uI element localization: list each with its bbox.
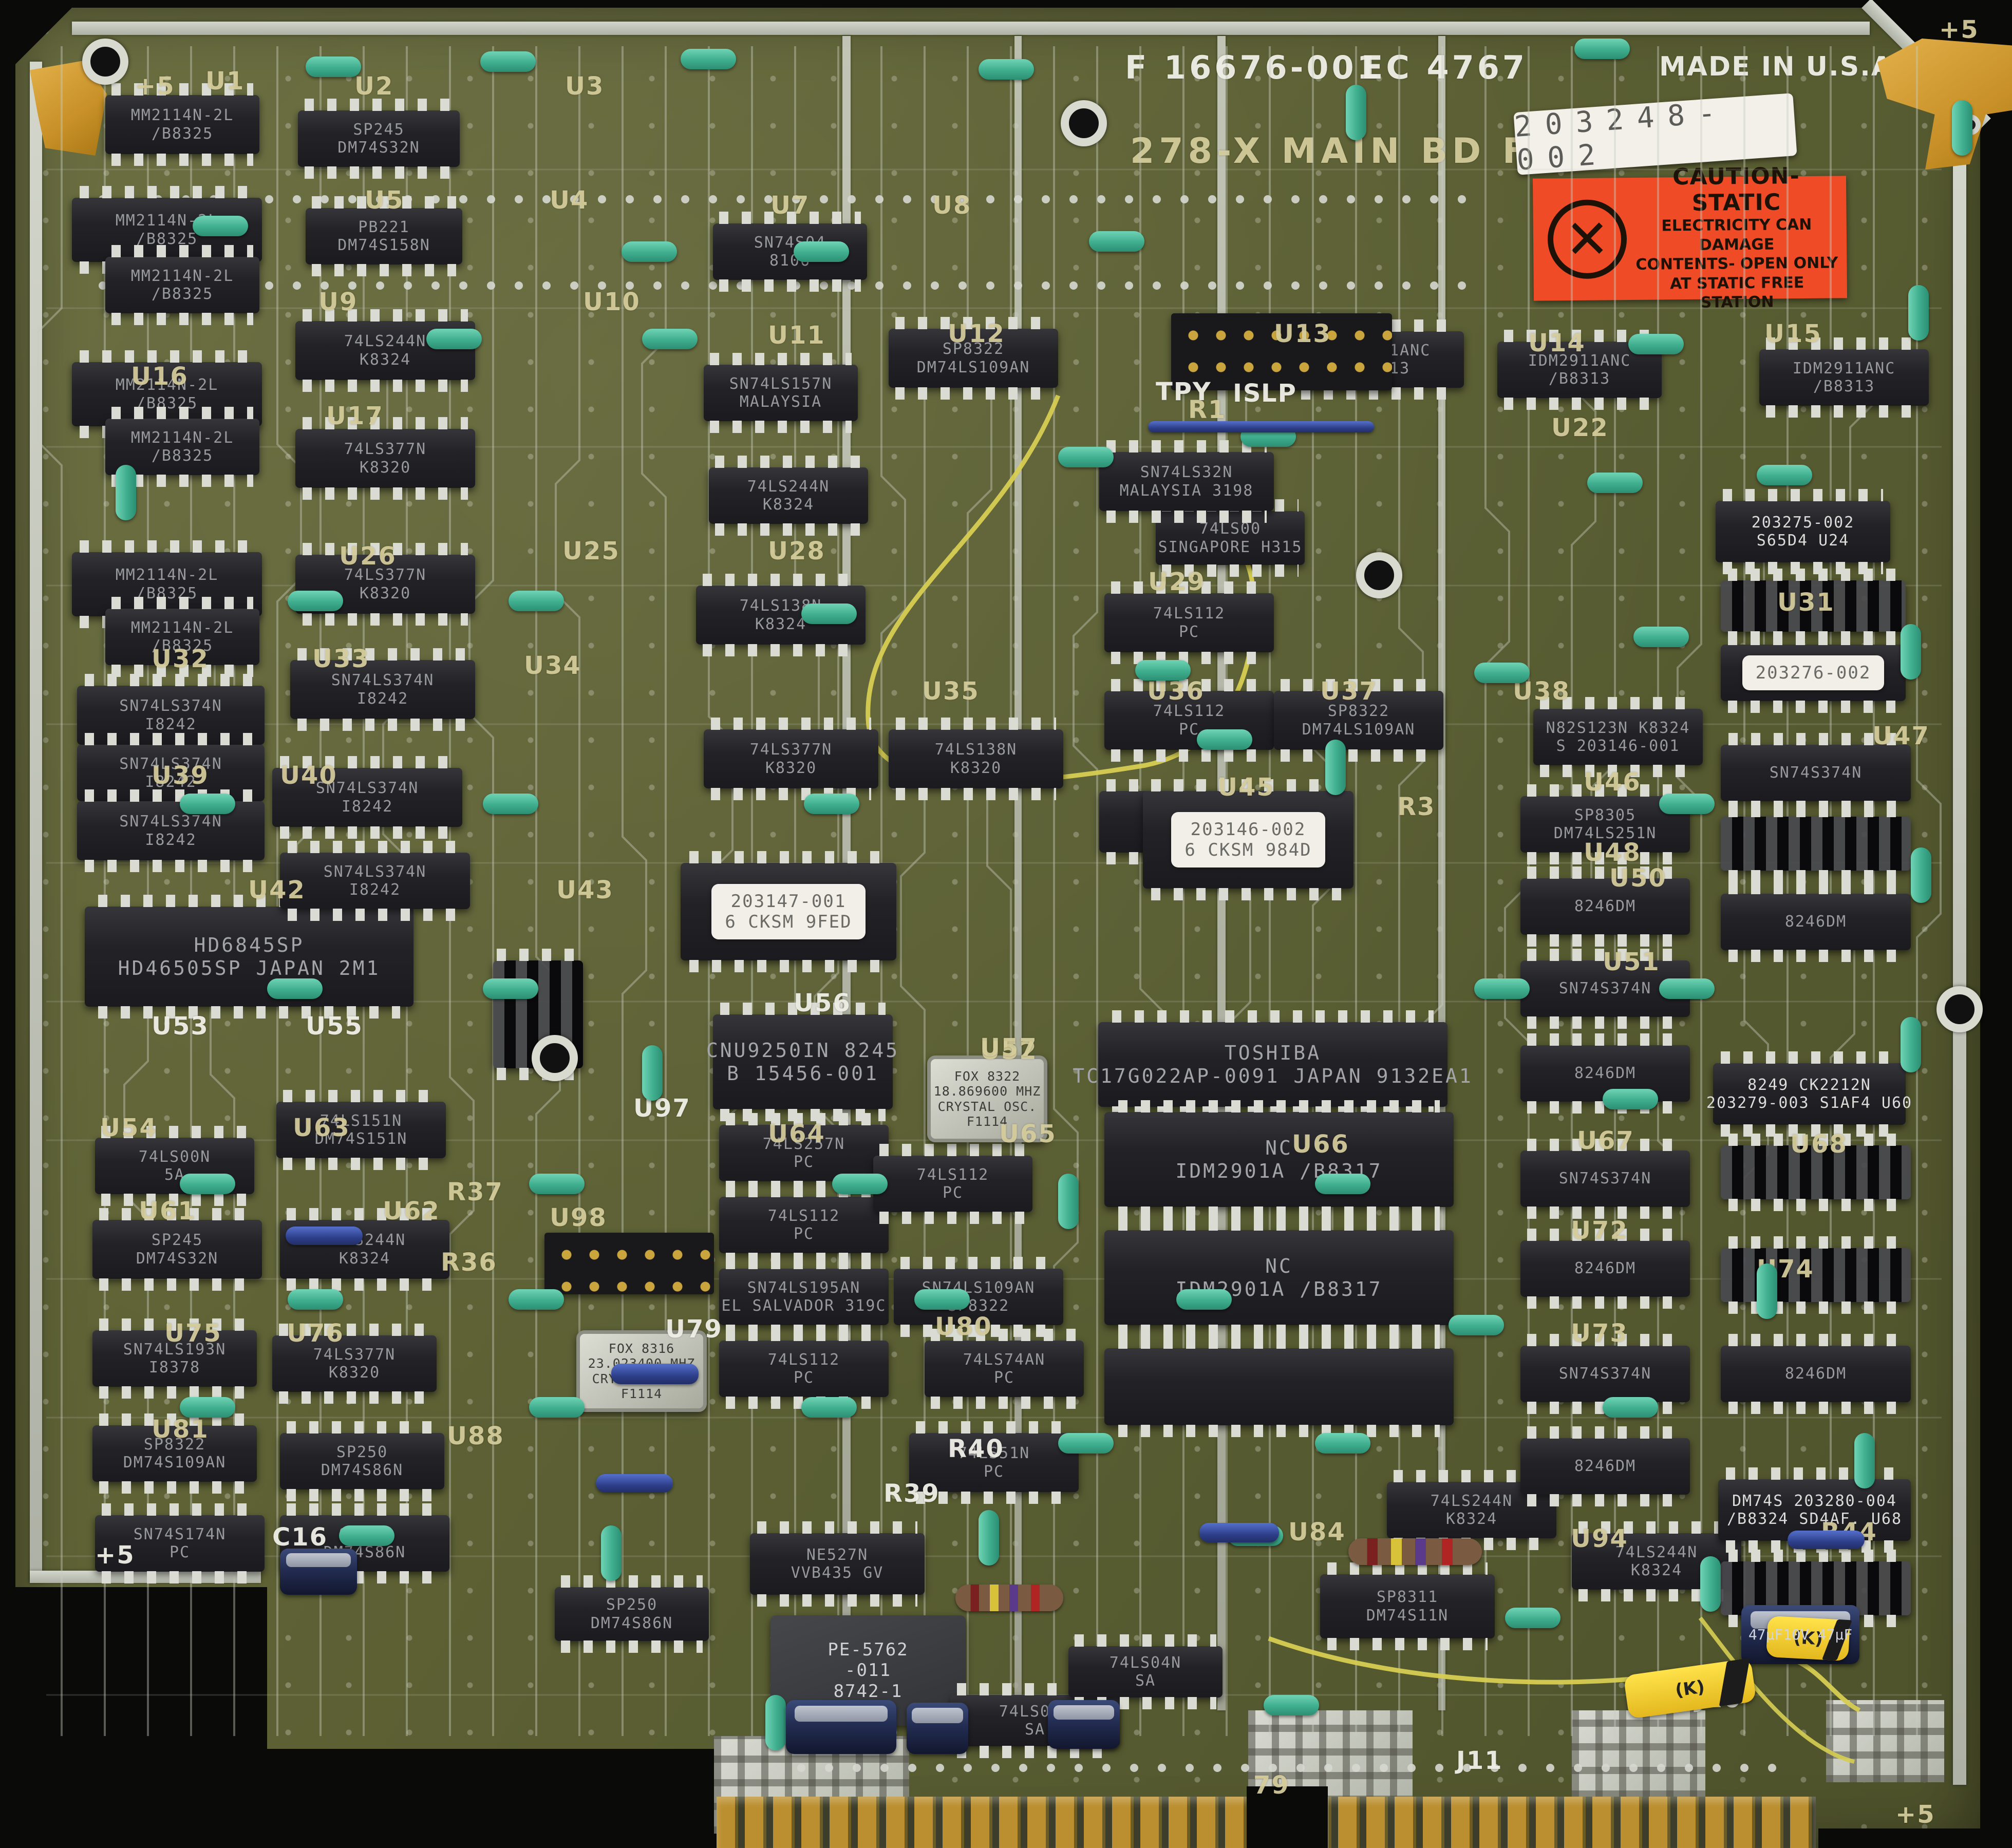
chip-label: HD6845SPHD46505SP JAPAN 2M1 (118, 934, 381, 980)
capacitor-green (306, 56, 361, 77)
silkscreen-label: R37 (447, 1178, 503, 1206)
ic-chip: 8246DM (1520, 1240, 1690, 1297)
solder-plane-3 (1572, 1710, 1705, 1798)
silkscreen-label: U17 (326, 402, 384, 430)
ic-chip: SN74S374N (1721, 745, 1911, 801)
silkscreen-label: U97 (633, 1094, 691, 1123)
silkscreen-label: U14 (1528, 329, 1586, 357)
silkscreen-label: U43 (556, 876, 614, 904)
silkscreen-label: U81 (152, 1415, 209, 1444)
edge-trace-right (1953, 126, 1966, 1785)
chip-label: SP8311DM74S11N (1366, 1588, 1449, 1625)
chip-label: SN74S374N (1559, 979, 1652, 997)
silkscreen-label: J11 (1456, 1746, 1503, 1775)
capacitor-green (804, 794, 859, 814)
capacitor-green (180, 1174, 235, 1194)
ic-chip: 74LS244NK8324 (709, 467, 868, 524)
silkscreen-label: U5 (365, 186, 404, 215)
chip-label: MM2114N-2L/B8325 (131, 429, 234, 465)
capacitor-green (914, 1289, 970, 1310)
capacitor-green (267, 978, 323, 999)
chip-label: PE-5762-0118742-1 (828, 1639, 908, 1701)
capacitor-green (642, 329, 698, 349)
capacitor-green (1505, 1608, 1560, 1628)
ic-chip: SN74LS157NMALAYSIA (704, 365, 858, 421)
capacitor-green (1474, 663, 1530, 683)
capacitor-green (1908, 285, 1929, 341)
capacitor-green (1603, 1089, 1658, 1109)
chip-label: 74LS112PC (1153, 605, 1225, 641)
chip-label: NE527NVVB435 GV (791, 1546, 884, 1582)
silkscreen-label: U57 (980, 1033, 1038, 1062)
chip-label: 74LS377NK8320 (344, 566, 427, 602)
caution-line1: ELECTRICITY CAN DAMAGE (1634, 215, 1840, 255)
silkscreen-label: U54 (100, 1114, 158, 1142)
capacitor-green (1659, 978, 1715, 999)
capacitor-green (1176, 1289, 1232, 1310)
chip-label: SN74LS195ANEL SALVADOR 319C (722, 1279, 887, 1315)
ic-chip: MM2114N-2L/B8325 (105, 95, 259, 154)
capacitor-blue (1788, 1531, 1865, 1549)
chip-label: SN74LS157NMALAYSIA (729, 375, 833, 411)
ic-chip: 8246DM (1721, 894, 1911, 950)
static-warning-icon: ✕ (1547, 199, 1627, 279)
silkscreen-label: U12 (948, 319, 1005, 348)
capacitor-green (288, 591, 343, 611)
silkscreen-label: U80 (935, 1312, 992, 1341)
silkscreen-label: U98 (550, 1203, 607, 1232)
ic-chip: N82S123N K8324S 203146-001 (1533, 709, 1703, 765)
ic-chip: IDM2911ANC/B8313 (1759, 349, 1929, 406)
electrolytic-capacitor (280, 1549, 357, 1595)
capacitor-green (1135, 660, 1191, 681)
capacitor-green (1197, 729, 1252, 750)
chip-label: SP8305DM74LS251N (1554, 806, 1657, 843)
capacitor-green (1901, 624, 1921, 680)
capacitor-value-label: 47µF10V 47µF (1748, 1626, 1852, 1643)
chip-label: 74LS244NK8324 (747, 478, 830, 514)
ic-chip: NE527NVVB435 GV (750, 1533, 925, 1595)
silkscreen-label: U79 (665, 1315, 723, 1344)
capacitor-green (193, 216, 248, 236)
mounting-hole (1936, 986, 1983, 1032)
silkscreen-label: 79 (1253, 1771, 1290, 1800)
capacitor-green (529, 1397, 585, 1418)
chip-label: SP245DM74S32N (337, 121, 420, 157)
chip-label: 74LS377NK8320 (750, 741, 833, 777)
silkscreen-label: U34 (524, 651, 581, 680)
chip-label: SN74LS374NI8242 (119, 697, 222, 733)
silkscreen-label: U46 (1584, 768, 1641, 797)
capacitor-green (1264, 1695, 1319, 1715)
ic-chip: 203275-002S65D4 U24 (1716, 501, 1890, 562)
capacitor-green (1700, 1556, 1721, 1612)
ic-chip: CNU9250IN 8245B 15456-001 (713, 1014, 893, 1109)
chip-label: SP250DM74S86N (591, 1596, 673, 1632)
silkscreen-label: U3 (565, 72, 604, 101)
silkscreen-label: U1 (205, 67, 245, 96)
capacitor-green (1757, 1264, 1777, 1319)
ic-chip: 74LS112PC (719, 1341, 889, 1397)
capacitor-green (801, 604, 857, 624)
capacitor-green (642, 1045, 663, 1101)
silkscreen-label: TPY (1156, 378, 1212, 406)
capacitor-green (601, 1525, 622, 1581)
ic-chip: 8246DM (1721, 1346, 1911, 1402)
resistor-axial (1348, 1538, 1482, 1565)
chip-label: PB221DM74S158N (337, 218, 430, 255)
resistor-axial (955, 1585, 1063, 1611)
caution-heading: CAUTION-STATIC (1633, 163, 1839, 217)
chip-label: 8246DM (1785, 1365, 1847, 1383)
silkscreen-label: U29 (1148, 568, 1206, 596)
chip-label: SN74LS374NI8242 (119, 813, 222, 849)
capacitor-green (794, 241, 849, 262)
right-margin (1980, 0, 2012, 1848)
capacitor-green (480, 51, 536, 72)
silkscreen-label: U40 (280, 761, 337, 790)
capacitor-green (483, 978, 538, 999)
chip-label: MM2114N-2L/B8325 (131, 106, 234, 143)
capacitor-green (1757, 465, 1812, 485)
silkscreen-label: U13 (1274, 319, 1331, 348)
board-part-number: F 16676-001 (1125, 49, 1382, 86)
ic-chip (1104, 1348, 1454, 1425)
chip-label: N82S123N K8324S 203146-001 (1546, 719, 1690, 756)
ic-chip: SP250DM74S86N (280, 1433, 444, 1489)
silkscreen-label: U53 (152, 1012, 209, 1041)
silkscreen-label: R36 (441, 1248, 497, 1277)
capacitor-green (1449, 1315, 1504, 1335)
silkscreen-label: U42 (248, 876, 306, 904)
ic-chip: SN74LS32NMALAYSIA 3198 (1099, 452, 1274, 511)
ic-chip: 74LS112PC (719, 1197, 889, 1253)
silkscreen-label: U75 (164, 1319, 222, 1348)
silkscreen-label: C16 (272, 1523, 328, 1552)
capacitor-green (801, 1397, 857, 1418)
silkscreen-label: U73 (1571, 1319, 1628, 1348)
made-in-label: MADE IN U.S.A. (1659, 51, 1905, 82)
silkscreen-label: +5 (135, 72, 175, 101)
ic-chip: MM2114N-2L/B8325 (105, 257, 259, 313)
silkscreen-label: U88 (447, 1422, 504, 1450)
ic-chip: 8246DM (1520, 1438, 1690, 1495)
electrolytic-capacitor (907, 1703, 968, 1754)
capacitor-blue (286, 1227, 363, 1245)
chip-label: MM2114N-2L/B8325 (131, 267, 234, 304)
capacitor-green (1058, 1433, 1114, 1454)
silkscreen-label: U31 (1777, 588, 1835, 617)
board-ec-number: EC 4767 (1361, 49, 1528, 86)
silkscreen-label: U37 (1320, 677, 1378, 706)
silkscreen-label: U10 (583, 288, 641, 316)
ic-chip: 74LS04NSA (1068, 1646, 1223, 1698)
board-edge-bottom-step (267, 1749, 717, 1848)
capacitor-green (1854, 1433, 1875, 1488)
silkscreen-label: U4 (550, 186, 589, 215)
capacitor-green (1628, 334, 1684, 354)
capacitor-green (622, 241, 677, 262)
capacitor-green (1058, 447, 1114, 467)
silkscreen-label: U15 (1764, 319, 1822, 348)
silkscreen-label: U2 (354, 72, 393, 101)
silkscreen-label: U76 (287, 1319, 344, 1348)
capacitor-green (1633, 627, 1689, 647)
silkscreen-label: U62 (383, 1197, 440, 1225)
silkscreen-label: U50 (1609, 864, 1667, 893)
silkscreen-label: U33 (312, 645, 370, 673)
chip-label: 74LS244NK8324 (1431, 1492, 1513, 1529)
chip-label: 74LS112PC (917, 1166, 989, 1202)
silkscreen-label: U9 (318, 288, 358, 316)
silkscreen-label: U22 (1551, 413, 1609, 442)
ic-chip: SN74S374N (1520, 1151, 1690, 1207)
capacitor-blue (1199, 1523, 1279, 1542)
chip-label: 8246DM (1574, 897, 1636, 915)
capacitor-green (1911, 847, 1931, 903)
chip-label: SN74S374N (1559, 1365, 1652, 1383)
silkscreen-label: U68 (1790, 1130, 1848, 1159)
ic-chip: SN74LS195ANEL SALVADOR 319C (719, 1269, 889, 1325)
ic-chip: SP8311DM74S11N (1320, 1574, 1495, 1638)
chip-label: 203276-002 (1742, 655, 1885, 690)
edge-trace-top (72, 22, 1870, 35)
capacitor-green (180, 794, 235, 814)
silkscreen-label: U64 (768, 1120, 825, 1148)
capacitor-green (979, 59, 1034, 80)
silkscreen-label: U39 (152, 761, 209, 790)
capacitor-green (483, 794, 538, 814)
silkscreen-label: U36 (1147, 677, 1205, 706)
chip-label: SN74LS374NI8242 (331, 671, 435, 708)
capacitor-green (529, 1174, 585, 1194)
ic-chip: SP245DM74S32N (298, 110, 460, 167)
capacitor-green (1574, 39, 1630, 59)
silkscreen-label: U7 (770, 191, 810, 220)
chip-label: 74LS00SINGAPORE H315 (1158, 520, 1303, 556)
mounting-hole (532, 1035, 578, 1081)
silkscreen-label: U11 (768, 321, 825, 350)
chip-label: 74LS377NK8320 (313, 1346, 396, 1382)
chip-label: 74LS112PC (768, 1207, 840, 1243)
capacitor-green (426, 329, 482, 349)
silkscreen-label: U67 (1577, 1126, 1634, 1155)
ic-chip: SP245DM74S32N (92, 1220, 262, 1279)
silkscreen-label: U56 (794, 989, 851, 1017)
silkscreen-label: U63 (293, 1114, 350, 1142)
ic-chip: 74LS112PC (1104, 593, 1274, 652)
chip-label: 203146-0026 CKSM 984D (1171, 812, 1325, 868)
silkscreen-label: R39 (883, 1479, 940, 1508)
capacitor-green (1058, 1174, 1079, 1229)
chip-label: IDM2911ANC/B8313 (1793, 360, 1896, 396)
ic-chip: 74LS112PC (873, 1156, 1032, 1212)
chip-label: 74LS112PC (768, 1351, 840, 1387)
silkscreen-label: U84 (1288, 1518, 1346, 1547)
ic-chip: 8249 CK2212N203279-003 S1AF4 U60 (1713, 1063, 1906, 1125)
silkscreen-label: U32 (152, 645, 209, 673)
capacitor-green (1315, 1174, 1370, 1194)
caution-line2: CONTENTS- OPEN ONLY (1634, 254, 1839, 275)
silkscreen-label: U45 (1217, 773, 1275, 802)
capacitor-green (339, 1525, 394, 1546)
ic-chip: 74LS377NK8320 (295, 429, 475, 488)
ic-socket (1721, 1248, 1911, 1302)
capacitor-green (681, 49, 736, 69)
silkscreen-label: U55 (306, 1012, 363, 1041)
chip-label: 8246DM (1574, 1064, 1636, 1082)
silkscreen-label: U26 (339, 542, 397, 571)
chip-label: 74LS04NSA (1110, 1654, 1181, 1690)
mounting-hole (82, 39, 128, 85)
chip-label: SN74S374N (1770, 764, 1863, 782)
silkscreen-label: U66 (1292, 1130, 1349, 1159)
chip-label: 8249 CK2212N203279-003 S1AF4 U60 (1706, 1076, 1912, 1112)
capacitor-green (509, 591, 564, 611)
silkscreen-label: +5 (95, 1541, 135, 1570)
eprom-chip: 203146-0026 CKSM 984D (1143, 791, 1353, 889)
capacitor-green (1089, 231, 1144, 252)
silkscreen-label: U61 (139, 1197, 196, 1225)
caution-text: CAUTION-STATIC ELECTRICITY CAN DAMAGE CO… (1633, 163, 1840, 313)
silkscreen-label: +5 (1895, 1800, 1935, 1829)
chip-label: SP8322DM74LS109AN (1302, 702, 1416, 739)
ic-chip: SN74S374N (1520, 1346, 1690, 1402)
caution-static-sticker: ✕ CAUTION-STATIC ELECTRICITY CAN DAMAGE … (1533, 176, 1847, 300)
chip-label: SN74S174NPC (134, 1525, 227, 1562)
chip-label: SN74S374N (1559, 1170, 1652, 1187)
ic-chip: 74LS74ANPC (925, 1341, 1084, 1397)
capacitor-green (1325, 740, 1346, 795)
chip-label: 8246DM (1785, 913, 1847, 931)
capacitor-green (288, 1289, 343, 1310)
silkscreen-label: R3 (1397, 793, 1435, 821)
mounting-hole (1356, 552, 1402, 598)
silkscreen-label: U28 (768, 537, 825, 565)
board-edge-bottom-left (0, 1587, 267, 1848)
chip-label: 74LS138NK8320 (935, 741, 1018, 777)
ic-chip: SP250DM74S86N (555, 1587, 709, 1641)
electrolytic-capacitor (1048, 1700, 1120, 1749)
chip-label: CNU9250IN 8245B 15456-001 (706, 1039, 899, 1085)
mounting-hole (1061, 100, 1107, 146)
capacitor-blue (1148, 421, 1374, 432)
chip-label: 8246DM (1574, 1259, 1636, 1277)
capacitor-green (979, 1510, 999, 1566)
caution-line3: AT STATIC FREE STATION (1634, 273, 1840, 313)
ic-chip: SN74LS374NI8242 (280, 853, 470, 909)
ic-socket (1721, 817, 1911, 871)
capacitor-green (1952, 100, 1972, 156)
silkscreen-label: U94 (1571, 1524, 1628, 1553)
capacitor-green (509, 1289, 564, 1310)
eprom-chip: 203147-0016 CKSM 9FED (681, 863, 896, 960)
capacitor-green (180, 1397, 235, 1418)
silkscreen-label: U48 (1584, 838, 1641, 867)
capacitor-green (832, 1174, 888, 1194)
ic-chip: TOSHIBATC17G022AP-0091 JAPAN 9132EA1 (1098, 1022, 1447, 1107)
capacitor-green (1315, 1433, 1370, 1454)
silkscreen-label: U25 (562, 537, 620, 565)
capacitor-green (1603, 1397, 1658, 1418)
eprom-chip: 203276-002 (1721, 645, 1906, 701)
capacitor-green (765, 1695, 786, 1750)
chip-label: 74LS377NK8320 (344, 440, 427, 477)
silkscreen-label: +5 (1939, 15, 1979, 44)
ic-chip: PB221DM74S158N (306, 208, 462, 265)
capacitor-green (1659, 794, 1715, 814)
silkscreen-label: U8 (932, 191, 971, 220)
chip-label: 74LS244NK8324 (344, 332, 427, 369)
chip-label: SP245DM74S32N (136, 1231, 219, 1268)
silkscreen-label: R40 (948, 1435, 1004, 1463)
silkscreen-label: LP (1261, 379, 1297, 408)
silkscreen-label: IS (1233, 379, 1262, 408)
chip-label: SP250DM74S86N (321, 1443, 404, 1480)
silkscreen-label: U47 (1872, 722, 1930, 750)
edge-trace-left (30, 62, 42, 1582)
silkscreen-label: U16 (131, 362, 189, 391)
capacitor-green (1587, 473, 1643, 493)
capacitor-green (116, 465, 136, 520)
ic-chip: NCIDM2901A /B8317 (1104, 1112, 1454, 1207)
bus-strip-4 (1438, 36, 1445, 1710)
chip-label: 203275-002S65D4 U24 (1752, 514, 1855, 550)
capacitor-green (1474, 978, 1530, 999)
chip-label: 8246DM (1574, 1457, 1636, 1475)
capacitor-marking: (K) (1674, 1676, 1706, 1701)
solder-plane-4 (1826, 1700, 1944, 1782)
ic-chip: HD6845SPHD46505SP JAPAN 2M1 (85, 907, 413, 1007)
silkscreen-label: U72 (1571, 1216, 1628, 1245)
silkscreen-label: U51 (1603, 948, 1660, 976)
capacitor-blue (611, 1364, 699, 1384)
capacitor-blue (596, 1474, 673, 1493)
chip-label: 74LS74ANPC (963, 1351, 1046, 1387)
silkscreen-label: U35 (922, 677, 980, 706)
chip-label: SN74LS32NMALAYSIA 3198 (1120, 463, 1254, 500)
ic-chip: 74LS138NK8320 (889, 729, 1063, 788)
ic-chip: NCIDM2901A /B8317 (1104, 1230, 1454, 1325)
silkscreen-label: U65 (999, 1120, 1057, 1148)
chip-label: 203147-0016 CKSM 9FED (711, 884, 865, 939)
ic-chip: 74LS377NK8320 (704, 729, 878, 788)
chip-label: SN74LS374NI8242 (324, 863, 427, 899)
electrolytic-capacitor (786, 1700, 896, 1754)
ic-chip: SN74LS374NI8242 (77, 801, 265, 860)
pin-header (544, 1233, 714, 1294)
capacitor-green (1346, 85, 1366, 140)
scanned-pcb-photo: F 16676-001 EC 4767 278-X MAIN BD FSS-D … (0, 0, 2012, 1848)
capacitor-green (1901, 1017, 1921, 1072)
chip-label: TOSHIBATC17G022AP-0091 JAPAN 9132EA1 (1073, 1042, 1473, 1088)
